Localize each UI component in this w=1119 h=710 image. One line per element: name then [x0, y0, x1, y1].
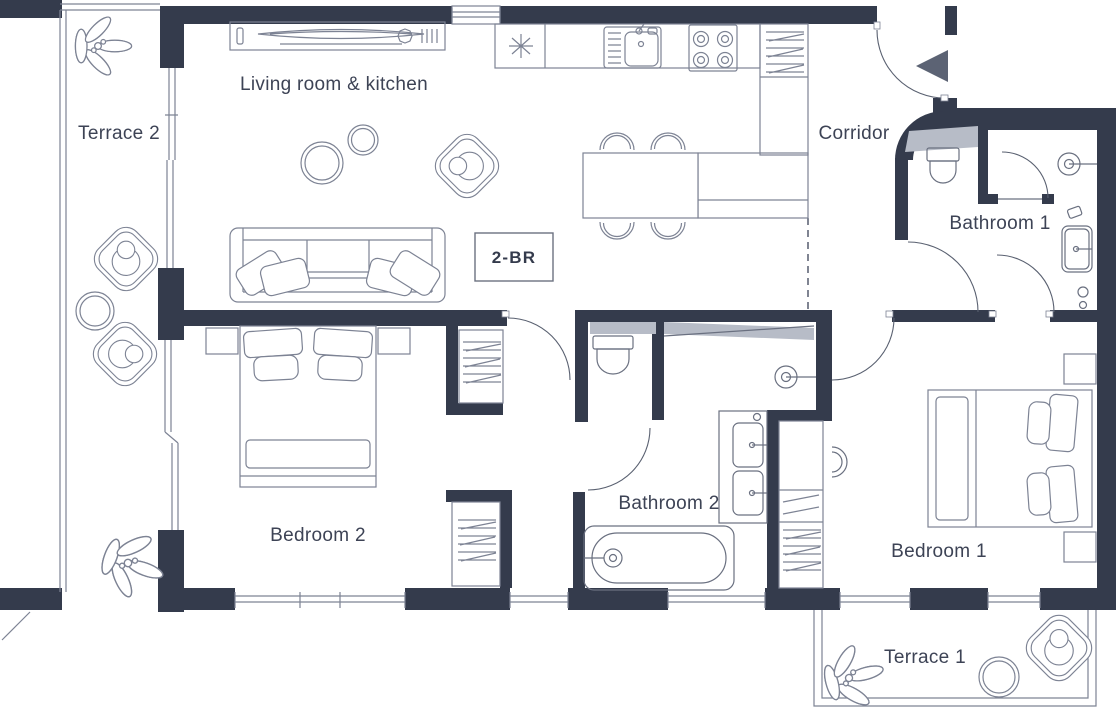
- dining-chair: [651, 222, 685, 239]
- bed-1: [928, 390, 1092, 527]
- nightstand: [1064, 532, 1096, 562]
- dining-chair: [600, 133, 634, 150]
- bedroom1-door-arc: [832, 318, 894, 380]
- window-bathroom2: [668, 592, 765, 608]
- plant-icon: [75, 14, 131, 79]
- washbasin: [1062, 206, 1092, 309]
- hall-door-arc: [508, 318, 570, 380]
- kitchen-counter: [495, 24, 760, 68]
- bathroom2-door-arc: [588, 428, 650, 490]
- nightstand: [1064, 354, 1096, 384]
- terrace-table: [76, 292, 114, 330]
- bedroom1-furniture: [832, 354, 1096, 562]
- dining-table: [583, 153, 698, 218]
- window-bedroom1-a: [840, 592, 910, 608]
- unit-badge-label: 2-BR: [492, 248, 536, 267]
- linen-closet: [779, 421, 823, 588]
- site-boundary-line: [2, 612, 30, 640]
- room-label-bathroom-2: Bathroom 2: [618, 493, 719, 514]
- room-label-terrace-2: Terrace 2: [78, 123, 160, 144]
- terrace-chair: [1020, 609, 1098, 687]
- pillow: [1027, 472, 1052, 515]
- floor-plan: Terrace 2 Living room & kitchen Corridor…: [0, 0, 1119, 710]
- nightstand: [206, 328, 238, 354]
- bedroom2-furniture: [206, 326, 503, 586]
- living-room: [230, 22, 505, 302]
- armchair: [429, 128, 504, 203]
- dining-chair: [600, 222, 634, 239]
- room-label-terrace-1: Terrace 1: [884, 647, 966, 668]
- kitchen-island: [698, 153, 808, 218]
- kitchen-sink: [604, 24, 661, 68]
- floor-plan-page: Terrace 2 Living room & kitchen Corridor…: [0, 0, 1119, 710]
- terrace-table: [979, 657, 1019, 697]
- shower-head-icon: [1058, 153, 1097, 175]
- fridge-unit: [760, 24, 808, 155]
- terrace-chair: [87, 316, 162, 391]
- pillow: [313, 328, 373, 358]
- window-hall: [510, 592, 568, 608]
- plant-icon: [817, 636, 891, 710]
- decor-stripes-icon: [422, 29, 437, 43]
- room-label-corridor: Corridor: [818, 123, 889, 144]
- nightstand: [378, 328, 410, 354]
- dining-chair: [651, 133, 685, 150]
- pillow: [1027, 401, 1052, 444]
- coffee-table: [301, 142, 343, 184]
- side-table: [348, 125, 378, 155]
- unit-badge: 2-BR: [475, 233, 553, 281]
- pillow: [317, 355, 362, 381]
- wardrobe: [459, 330, 503, 403]
- cooker-hood-icon: [509, 34, 533, 58]
- toilet: [927, 148, 959, 183]
- room-label-living-kitchen: Living room & kitchen: [240, 74, 428, 95]
- wall-basin-icon: [832, 447, 847, 477]
- pillow: [243, 328, 303, 358]
- bathroom1-door-arc: [908, 242, 978, 312]
- window-bedroom2: [235, 592, 405, 608]
- bed-2: [240, 326, 376, 487]
- wardrobe: [452, 502, 500, 586]
- bathroom1-inner-door-arc: [1002, 152, 1048, 198]
- soap-dish-icon: [1067, 206, 1082, 219]
- terrace-chair: [88, 221, 163, 296]
- window-top: [452, 6, 500, 24]
- pillow: [253, 355, 298, 381]
- window-bedroom1-b: [988, 592, 1040, 608]
- room-label-bedroom-2: Bedroom 2: [270, 525, 366, 546]
- stove: [689, 25, 737, 71]
- toilet: [593, 336, 633, 374]
- room-label-bedroom-1: Bedroom 1: [891, 541, 987, 562]
- room-label-bathroom-1: Bathroom 1: [949, 213, 1050, 234]
- bathroom1-bedroom-door-arc: [997, 255, 1054, 312]
- bathroom2-fixtures: [584, 336, 823, 590]
- sofa: [230, 228, 445, 302]
- bathtub: [584, 526, 734, 590]
- double-vanity: [719, 411, 767, 523]
- tv-console: [230, 22, 445, 50]
- dining-area: [583, 133, 698, 239]
- shower-head-icon: [775, 366, 816, 388]
- entry-arrow-icon: [916, 50, 948, 82]
